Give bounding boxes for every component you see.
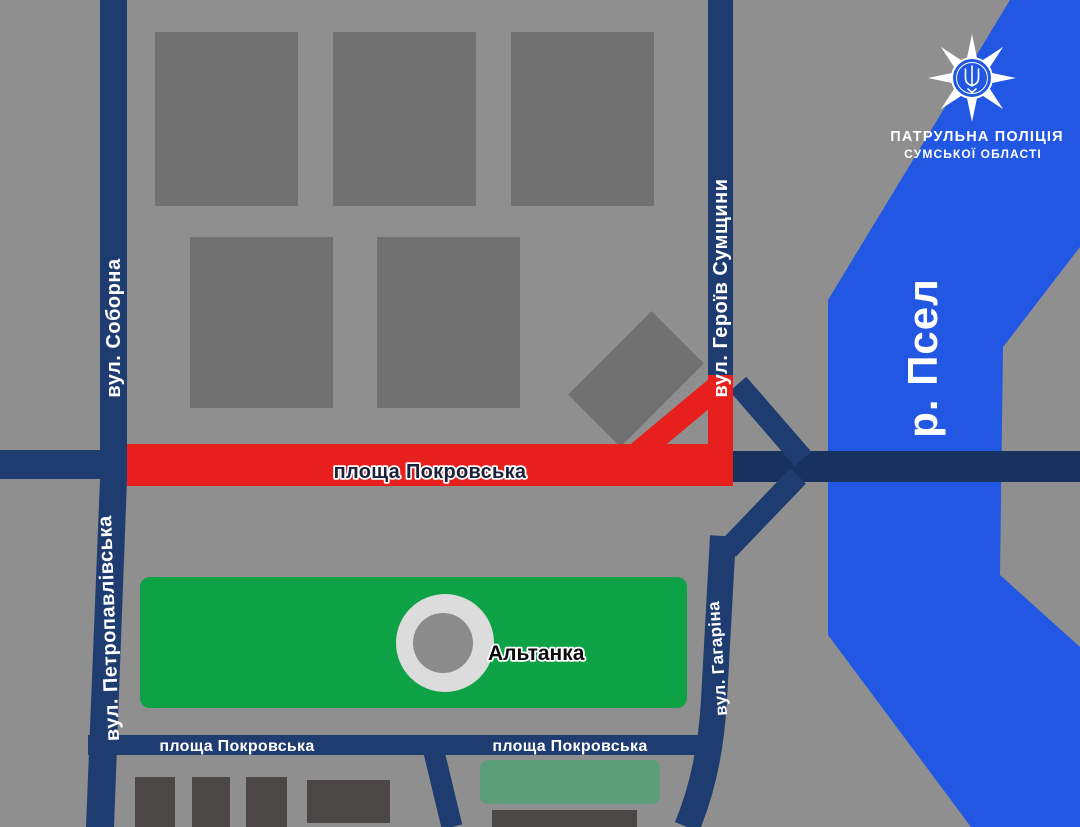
label-soborna: вул. Соборна <box>103 258 125 398</box>
label-closed-section: площа Покровська <box>334 461 527 483</box>
logo-title: ПАТРУЛЬНА ПОЛІЦІЯ <box>890 129 1064 145</box>
building-dark <box>307 780 390 823</box>
building-block <box>333 32 476 206</box>
gazebo-marker-inner <box>413 613 473 673</box>
building-dark <box>492 810 637 827</box>
building-block <box>190 237 333 408</box>
building-dark <box>246 777 287 827</box>
building-sage <box>480 760 660 804</box>
building-block <box>155 32 298 206</box>
logo-subtitle: СУМСЬКОЇ ОБЛАСТІ <box>904 146 1042 161</box>
police-badge-icon <box>928 34 1016 122</box>
label-square-left: площа Покровська <box>159 738 314 755</box>
building-block <box>511 32 654 206</box>
road-horizontal-west <box>0 450 127 479</box>
building-block <box>377 237 520 408</box>
label-square-center: площа Покровська <box>492 738 647 755</box>
map-canvas: вул. Соборна вул. Петропавлівська вул. Г… <box>0 0 1080 827</box>
road-soborna <box>100 0 127 480</box>
road-closure-map-image: вул. Соборна вул. Петропавлівська вул. Г… <box>0 0 1080 827</box>
building-dark <box>192 777 230 827</box>
building-dark <box>135 777 175 827</box>
label-heroiv-sumshchyny: вул. Героїв Сумщини <box>710 179 732 398</box>
label-river-psel: р. Псел <box>899 278 946 438</box>
label-altanka: Альтанка <box>488 642 585 665</box>
